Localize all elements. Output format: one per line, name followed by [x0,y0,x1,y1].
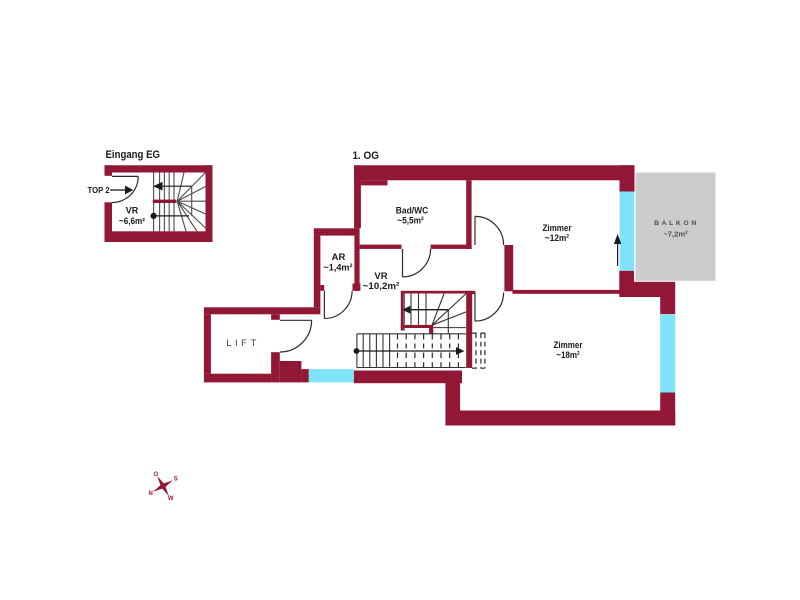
svg-text:S: S [174,476,178,482]
svg-text:~6,6m²: ~6,6m² [119,216,145,226]
svg-text:~7,2m²: ~7,2m² [663,229,688,238]
svg-text:O: O [153,472,158,478]
svg-text:W: W [168,496,174,502]
svg-text:LIFT: LIFT [226,338,260,349]
svg-text:~12m²: ~12m² [545,233,569,244]
svg-text:TOP 2: TOP 2 [88,186,111,195]
svg-text:~5,5m²: ~5,5m² [397,216,424,227]
svg-text:~1,4m²: ~1,4m² [324,262,353,273]
svg-text:1. OG: 1. OG [353,150,380,162]
svg-text:~18m²: ~18m² [556,350,580,361]
svg-text:VR: VR [126,206,139,216]
svg-text:N: N [149,491,153,497]
svg-text:~10,2m²: ~10,2m² [363,281,400,292]
svg-text:Eingang EG: Eingang EG [106,149,161,161]
svg-text:BALKON: BALKON [654,220,699,227]
